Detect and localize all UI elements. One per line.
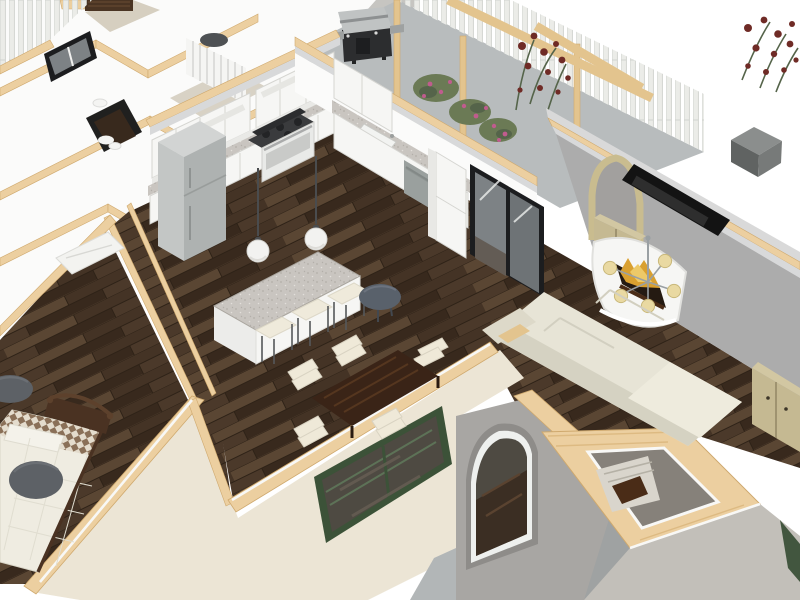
render-viewport[interactable]: 3D dollhouse view of single-story home	[0, 0, 800, 600]
render-stage: 3D dollhouse view of single-story home	[0, 0, 800, 600]
ottoman-pouf	[9, 461, 63, 499]
ceiling-light	[109, 143, 121, 150]
ceiling-light	[93, 99, 107, 107]
refrigerator[interactable]	[158, 121, 226, 261]
dark-ceiling-fixture	[200, 33, 228, 47]
